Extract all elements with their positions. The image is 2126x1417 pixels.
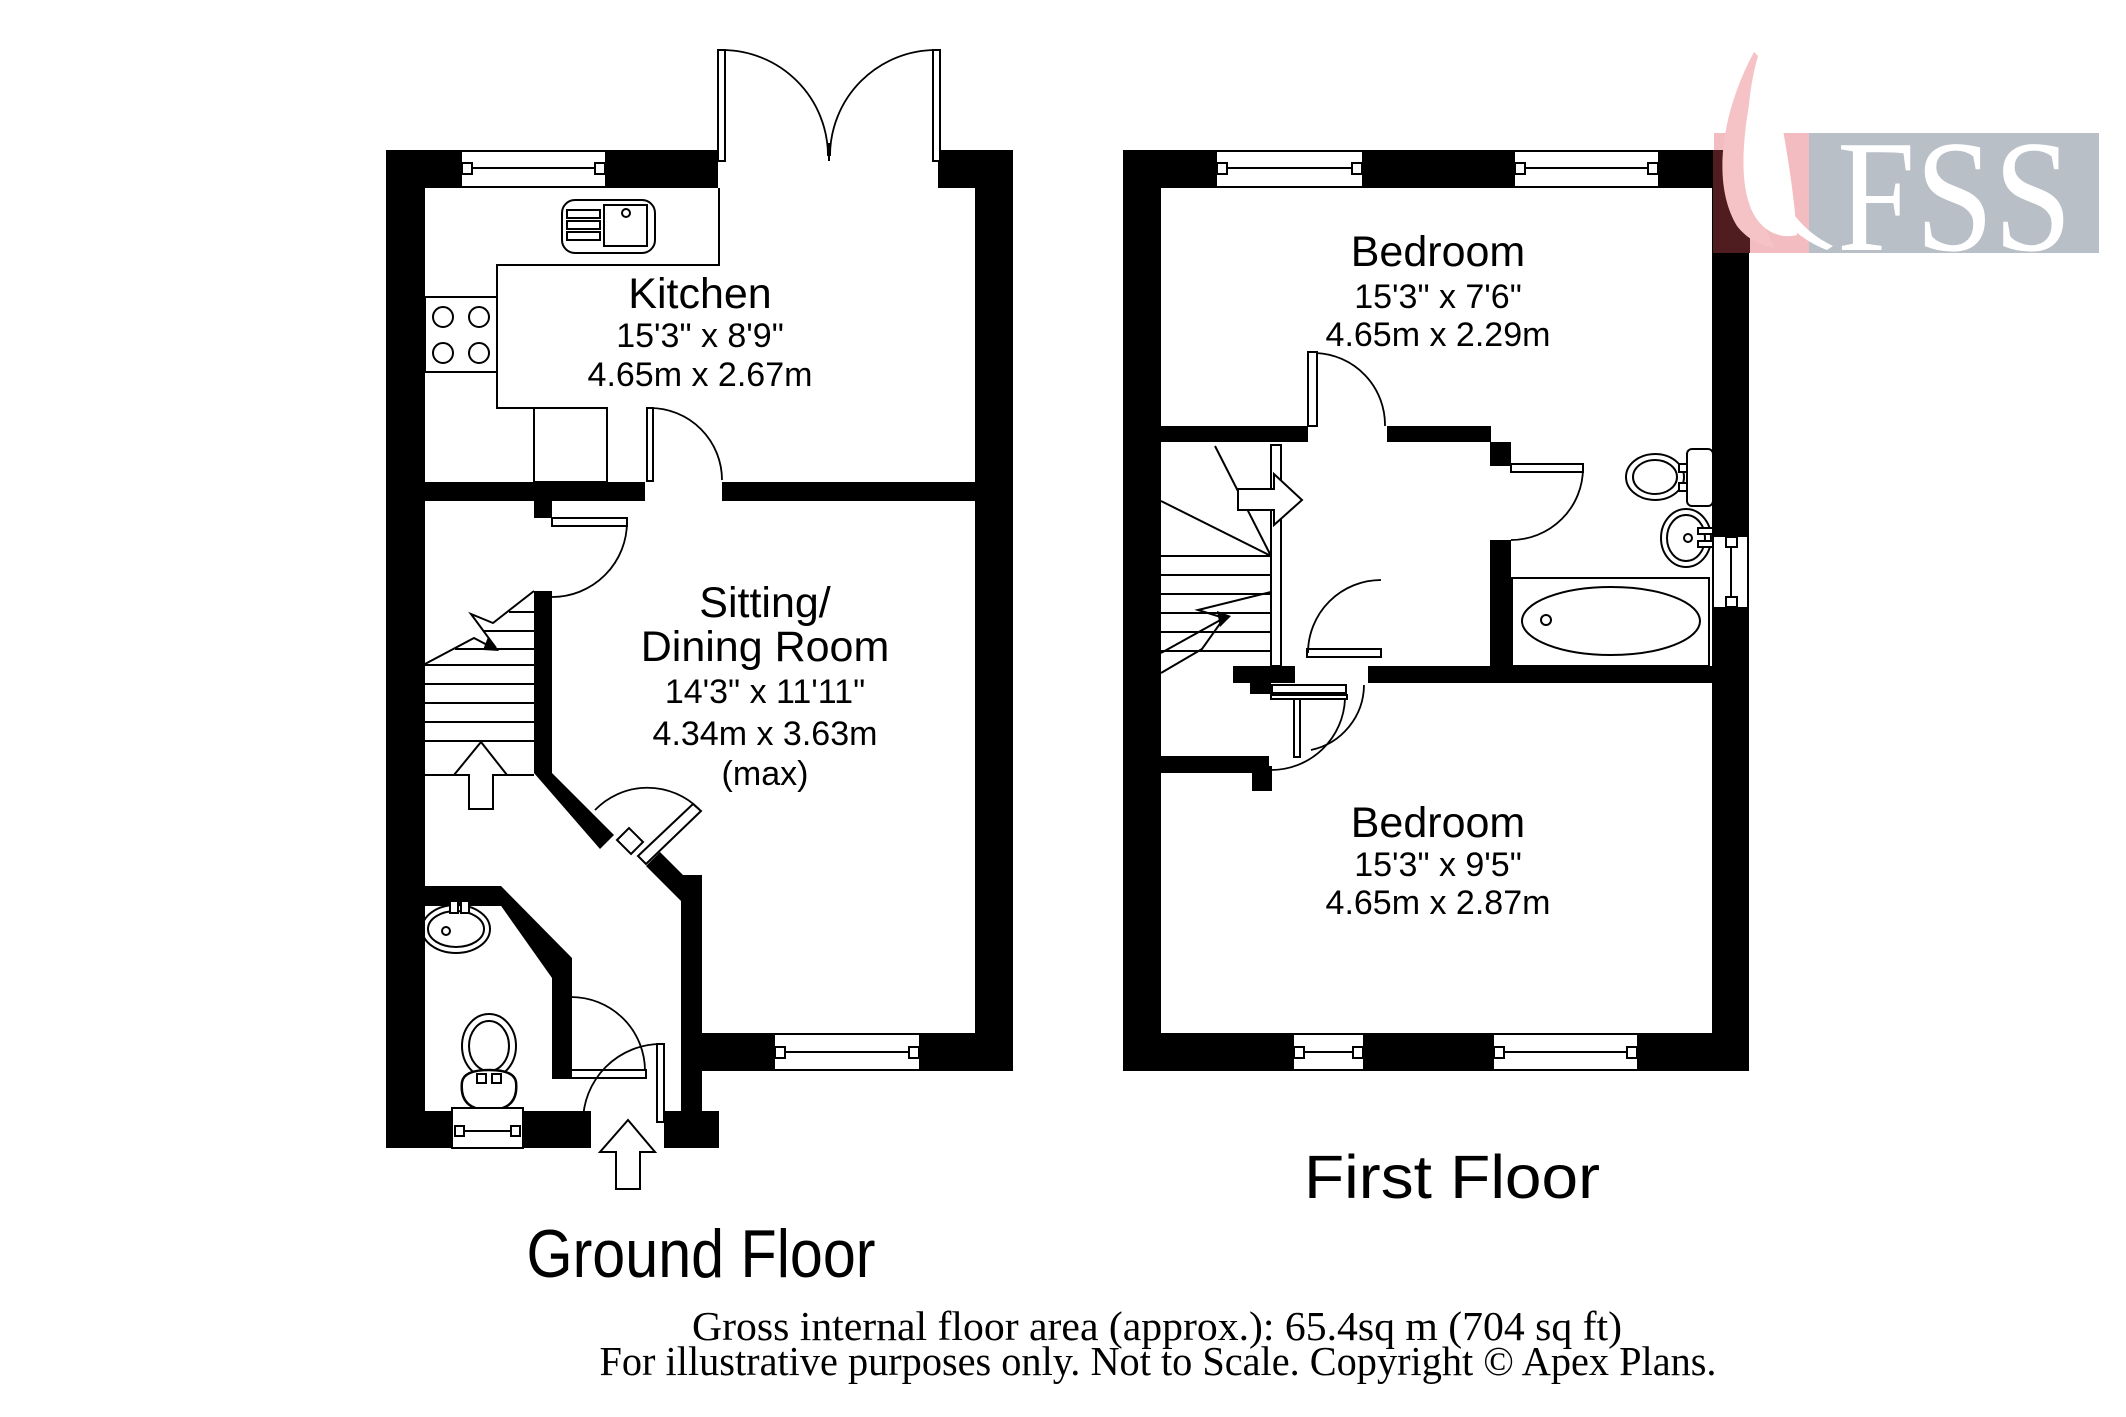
- svg-text:14'3" x 11'11": 14'3" x 11'11": [665, 673, 865, 711]
- svg-text:4.65m x 2.67m: 4.65m x 2.67m: [588, 356, 813, 394]
- svg-text:(max): (max): [722, 755, 809, 793]
- svg-text:Bedroom: Bedroom: [1351, 228, 1525, 276]
- svg-text:4.65m x 2.29m: 4.65m x 2.29m: [1326, 316, 1551, 354]
- svg-text:First Floor: First Floor: [1304, 1143, 1600, 1211]
- svg-text:FSS: FSS: [1837, 107, 2072, 285]
- svg-text:4.65m x 2.87m: 4.65m x 2.87m: [1326, 884, 1551, 922]
- svg-text:Bedroom: Bedroom: [1351, 799, 1525, 847]
- svg-text:15'3" x 7'6": 15'3" x 7'6": [1354, 278, 1522, 316]
- svg-text:Kitchen: Kitchen: [628, 270, 771, 318]
- svg-text:For illustrative purposes only: For illustrative purposes only. Not to S…: [600, 1338, 1717, 1384]
- svg-text:4.34m x 3.63m: 4.34m x 3.63m: [653, 715, 878, 753]
- svg-text:Ground Floor: Ground Floor: [527, 1216, 876, 1292]
- svg-text:15'3" x 8'9": 15'3" x 8'9": [616, 317, 784, 355]
- svg-text:15'3" x 9'5": 15'3" x 9'5": [1354, 846, 1522, 884]
- svg-text:Sitting/: Sitting/: [699, 579, 831, 627]
- svg-text:Dining Room: Dining Room: [641, 623, 890, 671]
